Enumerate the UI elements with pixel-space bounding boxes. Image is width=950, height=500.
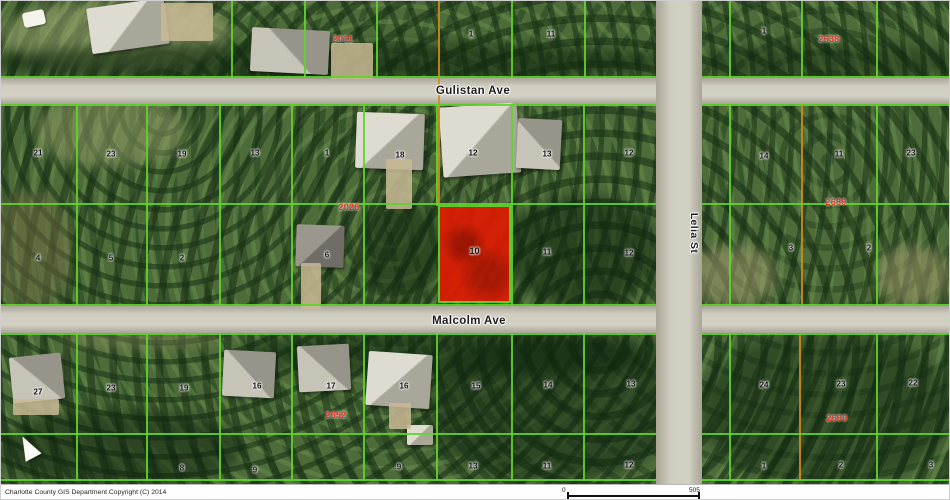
parcel-boundary-line xyxy=(729,333,731,481)
parcel-number-label: 13 xyxy=(627,380,636,389)
street-label-gulistan-ave: Gulistan Ave xyxy=(436,85,510,97)
parcel-boundary-line xyxy=(511,104,513,306)
parcel-boundary-line xyxy=(219,333,221,481)
street-label-lelia-st: Lelia St xyxy=(688,213,700,254)
parcel-boundary-line xyxy=(583,333,585,481)
vegetation-patch xyxy=(1,191,71,306)
parcel-boundary-line xyxy=(146,333,148,481)
parcel-boundary-line xyxy=(729,1,731,78)
subdivision-boundary-line xyxy=(438,1,440,78)
driveway xyxy=(389,403,411,429)
status-bar: Charlotte County GIS Department Copyrigh… xyxy=(1,484,950,500)
parcel-boundary-line xyxy=(219,104,221,306)
parcel-number-label: 11 xyxy=(835,150,843,159)
parcel-boundary-line xyxy=(1,433,656,435)
parcel-number-label: 3 xyxy=(929,461,933,470)
parcel-number-label: 22 xyxy=(909,379,918,388)
driveway xyxy=(301,263,321,309)
parcel-boundary-line xyxy=(304,1,306,78)
aerial-map[interactable]: 10 1111212319131181213121411234526111232… xyxy=(1,1,950,484)
building-rooftop xyxy=(250,27,330,75)
parcel-number-label: 11 xyxy=(543,248,551,257)
parcel-number-label: 15 xyxy=(472,382,481,391)
parcel-number-label: 12 xyxy=(625,149,634,158)
parcel-boundary-line xyxy=(231,1,233,78)
parcel-boundary-line xyxy=(1,479,656,481)
parcel-number-label: 5 xyxy=(109,254,113,263)
parcel-number-label: 4 xyxy=(36,254,40,263)
block-number-label: 2652 xyxy=(325,410,346,420)
parcel-boundary-line xyxy=(1,104,656,106)
parcel-boundary-line xyxy=(876,333,878,481)
parcel-boundary-line xyxy=(702,76,950,78)
parcel-number-label: 23 xyxy=(907,149,916,158)
subdivision-boundary-line xyxy=(799,333,801,481)
parcel-number-label: 3 xyxy=(789,244,793,253)
driveway xyxy=(331,43,373,79)
building-rooftop xyxy=(516,118,563,170)
parcel-boundary-line xyxy=(876,104,878,306)
parcel-number-label: 17 xyxy=(327,382,336,391)
parcel-boundary-line xyxy=(511,333,513,481)
parcel-number-label: 8 xyxy=(180,464,184,473)
subdivision-boundary-line xyxy=(438,104,440,206)
driveway xyxy=(386,159,412,209)
block-number-label: 2690 xyxy=(826,413,847,423)
selected-parcel-highlight[interactable]: 10 xyxy=(438,205,511,303)
parcel-number-label: 6 xyxy=(325,251,329,260)
selected-parcel-number: 10 xyxy=(469,246,479,256)
parcel-boundary-line xyxy=(146,104,148,306)
parcel-boundary-line xyxy=(291,104,293,306)
parcel-number-label: 19 xyxy=(180,384,189,393)
parcel-number-label: 12 xyxy=(625,461,634,470)
parcel-number-label: 9 xyxy=(397,463,401,472)
copyright-text: Charlotte County GIS Department Copyrigh… xyxy=(5,489,166,496)
building-rooftop xyxy=(222,350,276,399)
building-rooftop xyxy=(295,224,344,268)
parcel-boundary-line xyxy=(376,1,378,78)
gis-map-viewport: 10 1111212319131181213121411234526111232… xyxy=(0,0,950,500)
parcel-number-label: 1 xyxy=(469,30,473,39)
building-rooftop xyxy=(407,425,433,445)
parcel-boundary-line xyxy=(801,1,803,78)
parcel-number-label: 23 xyxy=(837,380,846,389)
parcel-number-label: 11 xyxy=(543,462,551,471)
parcel-boundary-line xyxy=(511,1,513,78)
parcel-boundary-line xyxy=(702,433,950,435)
parcel-boundary-line xyxy=(583,104,585,306)
parcel-boundary-line xyxy=(1,76,656,78)
parcel-number-label: 13 xyxy=(469,462,478,471)
vegetation-patch xyxy=(361,201,441,301)
parcel-number-label: 23 xyxy=(107,384,116,393)
parcel-boundary-line xyxy=(702,304,950,306)
driveway xyxy=(161,3,213,41)
scale-end-label: 505 xyxy=(689,487,700,494)
parcel-number-label: 21 xyxy=(34,149,43,158)
parcel-boundary-line xyxy=(584,1,586,78)
parcel-number-label: 13 xyxy=(251,149,260,158)
parcel-number-label: 9 xyxy=(253,466,257,475)
parcel-boundary-line xyxy=(702,104,950,106)
parcel-number-label: 23 xyxy=(107,150,116,159)
vegetation-patch xyxy=(876,246,950,306)
parcel-number-label: 16 xyxy=(253,382,262,391)
parcel-boundary-line xyxy=(436,333,438,481)
parcel-number-label: 2 xyxy=(867,244,871,253)
parcel-number-label: 11 xyxy=(547,30,555,39)
vegetation-patch xyxy=(431,336,671,481)
parcel-boundary-line xyxy=(291,333,293,481)
scale-tick xyxy=(567,492,569,499)
parcel-boundary-line xyxy=(363,333,365,481)
parcel-boundary-line xyxy=(702,333,950,335)
parcel-boundary-line xyxy=(363,104,365,306)
vegetation-patch xyxy=(691,246,776,306)
vegetation-patch xyxy=(701,334,950,482)
block-number-label: 2011 xyxy=(333,34,354,44)
parcel-number-label: 19 xyxy=(178,150,187,159)
block-number-label: 2026 xyxy=(338,202,359,212)
block-number-label: 2689 xyxy=(825,197,846,207)
scale-start-label: 0 xyxy=(562,487,566,494)
parcel-boundary-line xyxy=(1,304,656,306)
parcel-number-label: 2 xyxy=(180,254,184,263)
parcel-number-label: 27 xyxy=(34,388,43,397)
parcel-number-label: 12 xyxy=(469,149,478,158)
parcel-number-label: 1 xyxy=(762,462,766,471)
parcel-number-label: 1 xyxy=(325,149,329,158)
scale-bar-line xyxy=(567,495,698,497)
building-rooftop xyxy=(297,344,351,393)
building-rooftop xyxy=(365,351,433,409)
building-rooftop xyxy=(439,102,522,177)
parcel-boundary-line xyxy=(1,333,656,335)
parcel-number-label: 14 xyxy=(544,381,553,390)
parcel-boundary-line xyxy=(76,333,78,481)
parcel-boundary-line xyxy=(729,104,731,306)
scale-bar: 0 505 xyxy=(559,487,709,500)
parcel-number-label: 2 xyxy=(839,461,843,470)
parcel-boundary-line xyxy=(702,479,950,481)
parcel-number-label: 18 xyxy=(396,151,405,160)
driveway xyxy=(13,399,59,415)
parcel-boundary-line xyxy=(1,203,656,205)
parcel-number-label: 24 xyxy=(760,381,769,390)
subdivision-boundary-line xyxy=(801,104,803,306)
parcel-boundary-line xyxy=(76,104,78,306)
parcel-number-label: 16 xyxy=(400,382,409,391)
parcel-boundary-line xyxy=(876,1,878,78)
parcel-number-label: 12 xyxy=(625,249,634,258)
parcel-number-label: 13 xyxy=(543,150,552,159)
block-number-label: 2638 xyxy=(818,34,839,44)
parcel-number-label: 1 xyxy=(762,27,766,36)
parcel-number-label: 14 xyxy=(760,152,769,161)
street-label-malcolm-ave: Malcolm Ave xyxy=(432,315,506,327)
